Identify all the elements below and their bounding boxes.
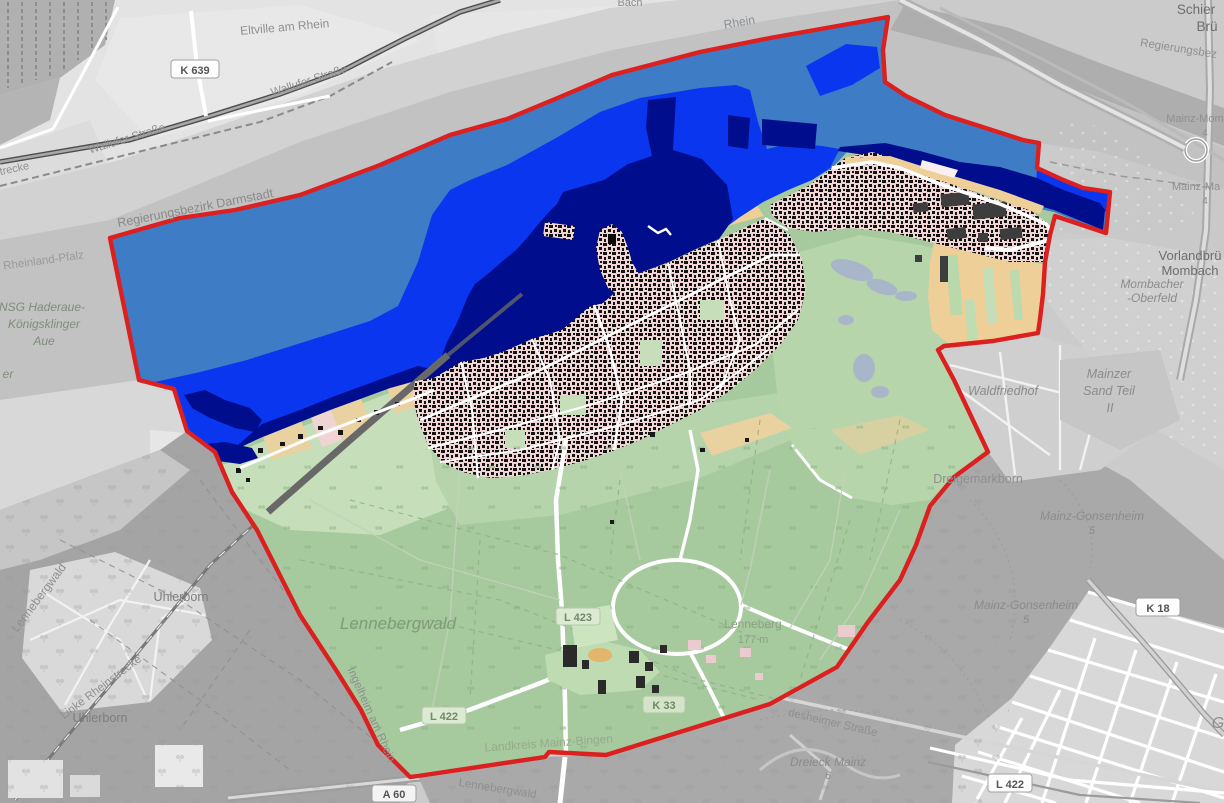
svg-text:Mainz-Gonsenheim: Mainz-Gonsenheim [1040, 509, 1144, 523]
svg-text:Mainz-Mom: Mainz-Mom [1166, 113, 1223, 125]
svg-text:4: 4 [1202, 128, 1208, 139]
svg-text:NSG Haderaue-: NSG Haderaue- [0, 300, 85, 314]
svg-text:Schier: Schier [1177, 2, 1216, 17]
svg-text:Aue: Aue [32, 334, 55, 348]
svg-text:A 60: A 60 [383, 789, 406, 801]
svg-text:5: 5 [1089, 525, 1096, 537]
svg-text:Sand Teil: Sand Teil [1083, 384, 1136, 398]
svg-text:G: G [1212, 715, 1224, 732]
svg-text:-Oberfeld: -Oberfeld [1127, 291, 1177, 305]
svg-text:Königsklinger: Königsklinger [8, 317, 81, 331]
svg-text:er: er [3, 367, 15, 381]
svg-text:Mombacher: Mombacher [1120, 277, 1184, 291]
svg-text:Brü: Brü [1196, 19, 1217, 34]
svg-text:L 423: L 423 [564, 612, 592, 624]
svg-text:L 422: L 422 [996, 779, 1024, 791]
svg-text:Mainzer: Mainzer [1087, 367, 1132, 381]
svg-text:177 m: 177 m [738, 634, 769, 646]
svg-text:Waldfriedhof: Waldfriedhof [968, 384, 1039, 398]
svg-text:K 639: K 639 [180, 65, 209, 77]
svg-text:5: 5 [1023, 614, 1030, 626]
svg-text:Vorlandbrü: Vorlandbrü [1159, 248, 1222, 263]
svg-text:Uhlerborn: Uhlerborn [154, 590, 209, 604]
svg-text:L 422: L 422 [430, 711, 458, 723]
svg-text:Uhlerborn: Uhlerborn [73, 711, 128, 725]
svg-text:Mainz-Gonsenheim: Mainz-Gonsenheim [974, 598, 1078, 612]
svg-text:Bach: Bach [617, 0, 642, 9]
svg-text:Mainz-Ma: Mainz-Ma [1172, 181, 1221, 193]
svg-text:Mombach: Mombach [1161, 263, 1218, 278]
svg-text:K 18: K 18 [1146, 603, 1169, 615]
svg-text:Dreieck Mainz: Dreieck Mainz [790, 755, 866, 769]
svg-text:6: 6 [825, 770, 832, 782]
svg-text:4: 4 [1202, 196, 1208, 207]
svg-text:Lennebergwald: Lennebergwald [340, 614, 457, 633]
svg-text:K 33: K 33 [652, 700, 675, 712]
svg-text:Dreigemarkborn: Dreigemarkborn [933, 472, 1023, 486]
svg-text:II: II [1107, 401, 1114, 415]
svg-text:Lenneberg: Lenneberg [724, 617, 781, 631]
